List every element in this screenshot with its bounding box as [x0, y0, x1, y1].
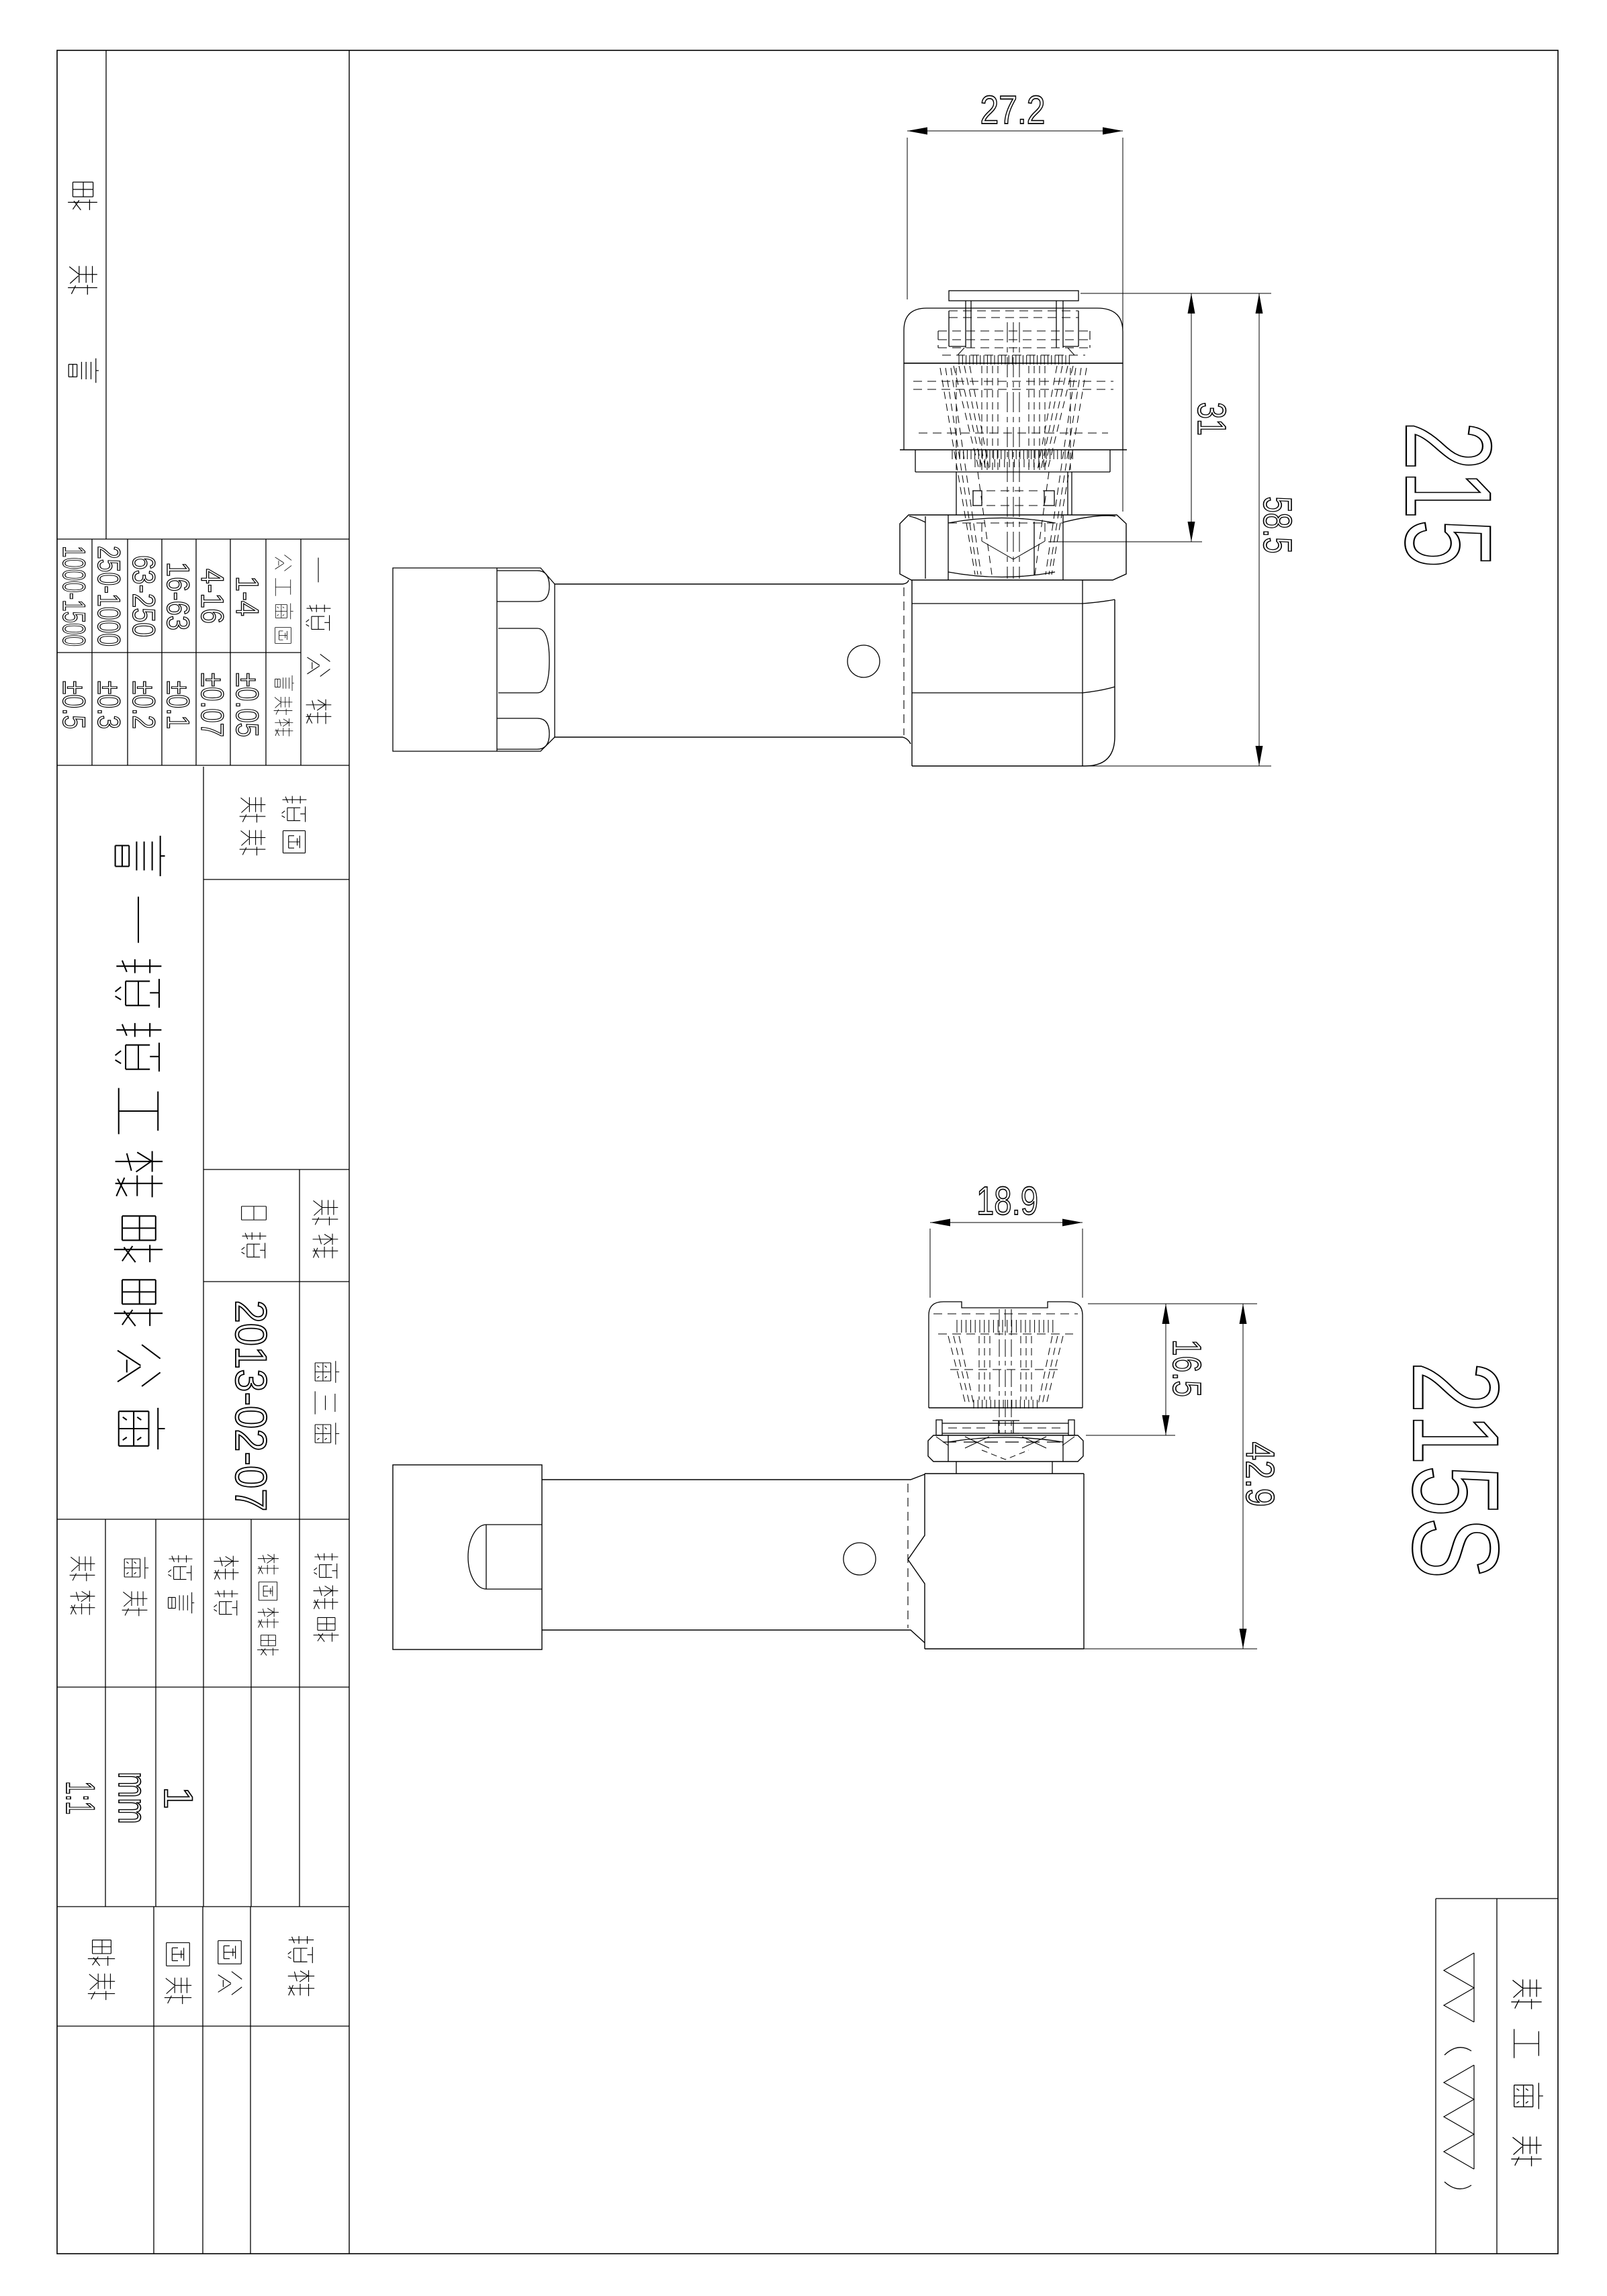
- svg-text:16.5: 16.5: [1164, 1339, 1209, 1397]
- svg-text:±0.05: ±0.05: [230, 673, 265, 737]
- svg-text:215S: 215S: [1387, 1361, 1524, 1579]
- svg-text:2013-02-07: 2013-02-07: [226, 1300, 276, 1512]
- svg-text:±0.3: ±0.3: [91, 681, 127, 729]
- svg-text:215: 215: [1380, 422, 1517, 568]
- svg-text:63-250: 63-250: [126, 555, 162, 637]
- svg-text:±0.2: ±0.2: [126, 681, 162, 729]
- svg-text:16-63: 16-63: [160, 562, 196, 630]
- svg-text:±0.1: ±0.1: [160, 681, 196, 729]
- svg-text:±0.5: ±0.5: [56, 681, 92, 729]
- svg-text:42.9: 42.9: [1238, 1442, 1282, 1507]
- svg-text:250-1000: 250-1000: [91, 546, 127, 647]
- svg-text:1000-1500: 1000-1500: [56, 546, 92, 647]
- svg-text:4-16: 4-16: [195, 569, 230, 624]
- svg-text:mm: mm: [110, 1772, 155, 1824]
- svg-text:27.2: 27.2: [980, 88, 1046, 132]
- svg-text:31: 31: [1189, 402, 1234, 436]
- svg-text:1: 1: [156, 1786, 201, 1809]
- svg-text:1:1: 1:1: [58, 1781, 103, 1815]
- svg-text:1-4: 1-4: [230, 576, 265, 616]
- svg-text:58.5: 58.5: [1255, 497, 1299, 554]
- svg-text:±0.07: ±0.07: [195, 673, 230, 737]
- svg-text:18.9: 18.9: [976, 1179, 1038, 1223]
